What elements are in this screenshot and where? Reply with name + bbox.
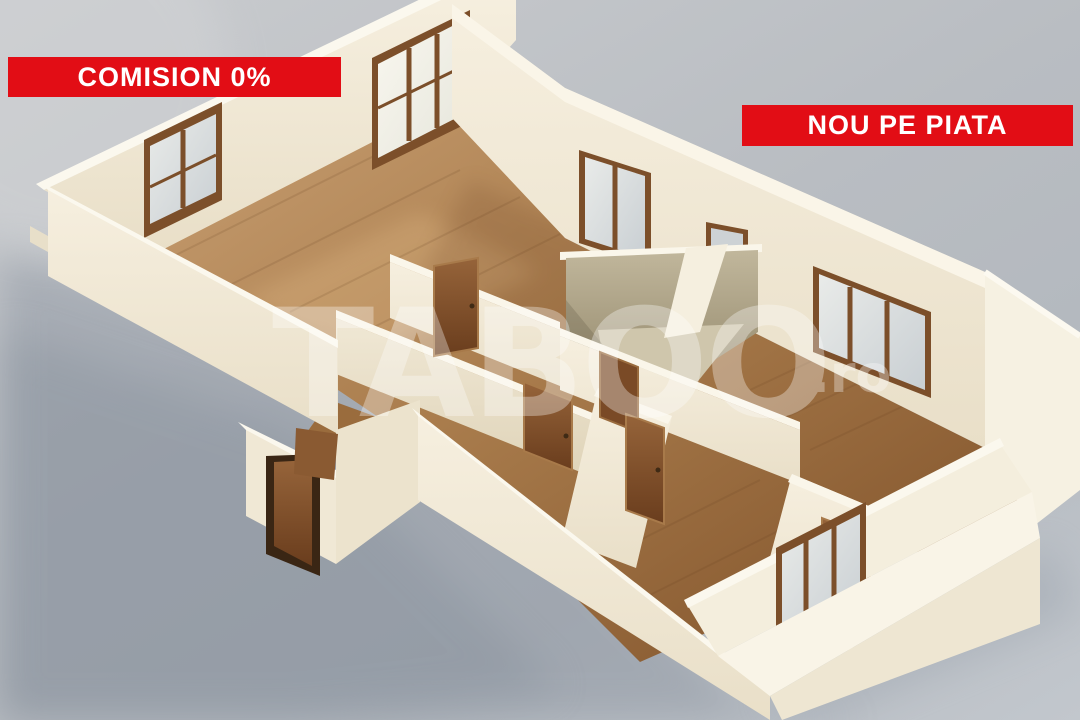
door-living [434,258,478,356]
commission-badge: COMISION 0% [8,57,341,97]
new-on-market-badge: NOU PE PIATA [742,105,1073,146]
entrance-door-open-leaf [294,428,338,480]
door-kitchen [626,414,664,524]
listing-render: COMISION 0% NOU PE PIATA TABOO.ro [0,0,1080,720]
